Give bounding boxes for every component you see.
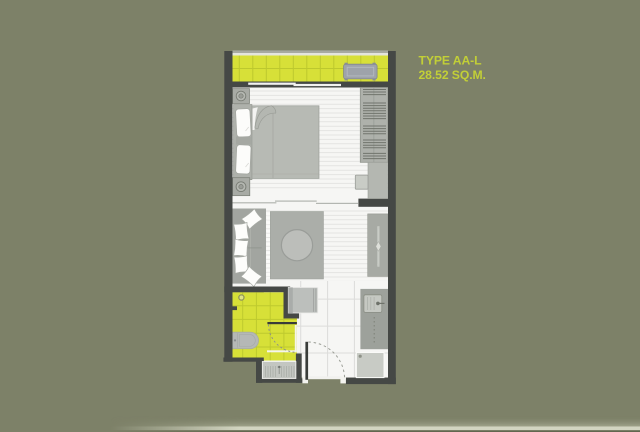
svg-text:TYPE AA-L: TYPE AA-L: [419, 54, 483, 68]
svg-text:28.52 SQ.M.: 28.52 SQ.M.: [419, 68, 486, 82]
